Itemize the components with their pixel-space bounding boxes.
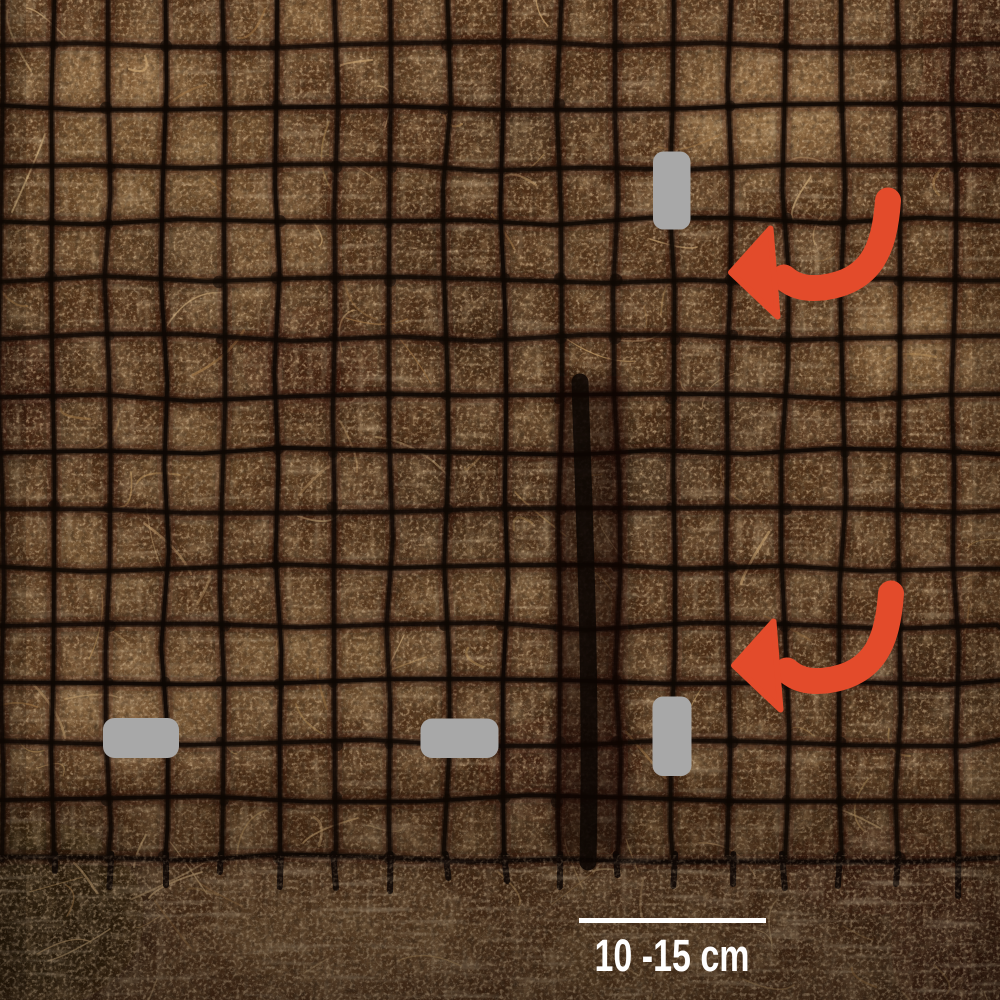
svg-text:10 -15 cm: 10 -15 cm — [595, 930, 750, 981]
